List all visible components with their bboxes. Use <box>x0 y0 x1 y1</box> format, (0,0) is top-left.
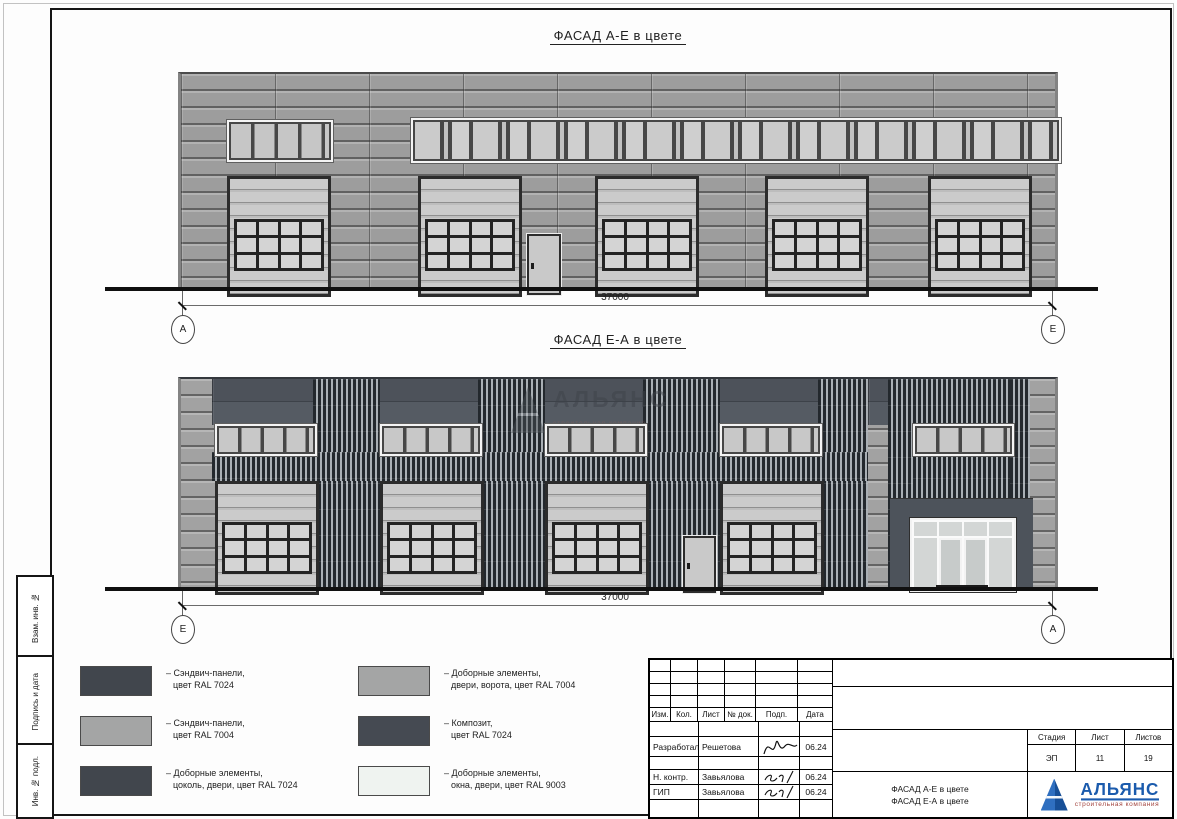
color-swatch <box>358 766 430 796</box>
vertical-slat-strip <box>313 379 380 588</box>
legend-item: – Композит,цвет RAL 7024 <box>358 716 512 746</box>
dimension-value: 37000 <box>540 292 690 303</box>
window-strip <box>380 424 482 456</box>
stamp-date: 06.24 <box>800 737 832 756</box>
company-name: АЛЬЯНС <box>1081 781 1160 801</box>
col-ndok: № док. <box>725 708 755 721</box>
vertical-slat-strip <box>913 452 1010 498</box>
ground-line <box>105 287 1098 291</box>
ground-line <box>105 587 1098 591</box>
stage-label: Стадия <box>1028 730 1075 744</box>
legend-item: – Сэндвич-панели,цвет RAL 7004 <box>80 716 245 746</box>
stamp-date: 06.24 <box>800 785 832 799</box>
sectional-gate <box>595 176 699 297</box>
sectional-gate <box>215 481 319 595</box>
legend-item: – Доборные элементы,окна, двери, цвет RA… <box>358 766 566 796</box>
stamp-name: Завьялова <box>699 770 758 784</box>
slat-band <box>212 452 868 481</box>
vertical-slat-strip <box>818 379 868 588</box>
sectional-gate <box>720 481 824 595</box>
doc-number-cell <box>833 660 1172 686</box>
sectional-gate <box>227 176 331 297</box>
col-podp: Подп. <box>756 708 797 721</box>
margin-label: Инв. № подл. <box>31 756 40 806</box>
legend-item: – Доборные элементы,цоколь, двери, цвет … <box>80 766 298 796</box>
facade-a-e-drawing <box>178 72 1058 291</box>
stage-sheet-grid: Стадия Лист Листов ЭП 11 19 <box>1028 730 1172 771</box>
dimension-line <box>182 305 1053 306</box>
color-swatch <box>80 666 152 696</box>
legend-item: – Доборные элементы,двери, ворота, цвет … <box>358 666 575 696</box>
sectional-gate <box>765 176 869 297</box>
dimension-value: 37000 <box>540 592 690 603</box>
vertical-slat-strip <box>478 379 545 588</box>
color-swatch <box>358 666 430 696</box>
glazed-entrance <box>910 518 1016 592</box>
stamp-role: Разработал <box>650 737 698 756</box>
sectional-gate <box>418 176 522 297</box>
object-name-cell <box>833 730 1027 771</box>
col-kol: Кол. <box>671 708 697 721</box>
margin-label: Взам. инв. № <box>31 593 40 643</box>
signature <box>759 737 799 756</box>
stage-value: ЭП <box>1028 745 1075 771</box>
sectional-gate <box>928 176 1032 297</box>
vertical-slat-strip <box>913 379 1010 424</box>
facade-e-a-drawing: АЛЬЯНС строительная компания <box>178 377 1058 591</box>
sectional-gate <box>545 481 649 595</box>
window-strip <box>227 120 333 162</box>
window-strip-long <box>411 118 1061 163</box>
sheet-number: 11 <box>1076 745 1123 771</box>
doc-number-cell2 <box>833 687 1172 729</box>
glass-door <box>964 538 987 588</box>
stamp-name: Решетова <box>699 737 758 756</box>
color-swatch <box>80 766 152 796</box>
dimension-line <box>182 605 1053 606</box>
alliance-logo-triangle-icon <box>1041 779 1068 811</box>
facade-a-e-title: ФАСАД А-Е в цвете <box>178 28 1058 43</box>
margin-box-podpis: Подпись и дата <box>16 655 54 748</box>
company-subtitle: строительная компания <box>1075 801 1160 808</box>
window-strip <box>913 424 1014 456</box>
sheets-total: 19 <box>1125 745 1172 771</box>
company-logo: АЛЬЯНС строительная компания <box>1028 772 1172 817</box>
sheets-label: Листов <box>1125 730 1172 744</box>
col-list: Лист <box>698 708 724 721</box>
stamp-role: Н. контр. <box>650 770 698 784</box>
title-block: Изм. Кол. Лист № док. Подп. Дата Разрабо… <box>648 658 1174 819</box>
stamp-role: ГИП <box>650 785 698 799</box>
margin-label: Подпись и дата <box>31 673 40 731</box>
color-swatch <box>80 716 152 746</box>
margin-box-vzam: Взам. инв. № <box>16 575 54 660</box>
axis-marker-a: А <box>1041 615 1065 644</box>
window-strip <box>215 424 317 456</box>
facade-e-a-title: ФАСАД Е-А в цвете <box>178 332 1058 347</box>
sheet-title-cell: ФАСАД А-Е в цвете ФАСАД Е-А в цвете <box>833 772 1027 817</box>
sectional-gate <box>380 481 484 595</box>
stamp-date: 06.24 <box>800 770 832 784</box>
entrance-door <box>527 234 561 295</box>
window-strip <box>720 424 822 456</box>
drawing-sheet: { "sheet": { "facade1": { "title": "ФАСА… <box>0 0 1177 819</box>
stamp-name: Завьялова <box>699 785 758 799</box>
color-swatch <box>358 716 430 746</box>
glass-door <box>939 538 962 588</box>
signature <box>759 770 799 784</box>
axis-marker-e: Е <box>171 615 195 644</box>
window-strip <box>545 424 647 456</box>
margin-box-inv: Инв. № подл. <box>16 743 54 819</box>
col-izm: Изм. <box>650 708 670 721</box>
entrance-door <box>683 536 716 593</box>
sheet-label: Лист <box>1076 730 1123 744</box>
col-data: Дата <box>798 708 832 721</box>
legend-item: – Сэндвич-панели,цвет RAL 7024 <box>80 666 245 696</box>
title-block-stamp: Изм. Кол. Лист № док. Подп. Дата Разрабо… <box>650 660 832 817</box>
signature <box>759 785 799 799</box>
